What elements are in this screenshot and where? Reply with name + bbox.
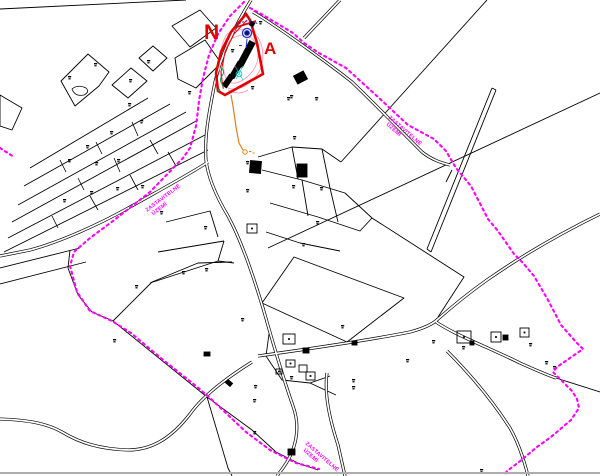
parcel-number-mark xyxy=(147,60,150,63)
building xyxy=(294,71,308,84)
building xyxy=(491,332,501,342)
building xyxy=(286,360,295,367)
parcel-number-mark xyxy=(246,161,249,164)
parcel-number-mark xyxy=(188,91,191,94)
parcel-number-mark xyxy=(241,318,244,321)
parcel-number-mark xyxy=(86,145,89,148)
parcel-number-mark xyxy=(135,285,138,288)
parcel-number-mark xyxy=(406,359,409,362)
parcel-number-mark xyxy=(545,361,548,364)
parcel-number-mark xyxy=(68,76,71,79)
parcel-number-mark xyxy=(141,185,144,188)
building xyxy=(283,334,295,344)
parcel-number-mark xyxy=(117,159,120,162)
parcel-number-mark xyxy=(287,97,290,100)
parcel-number-mark xyxy=(320,187,323,190)
parcel-number-mark xyxy=(231,49,234,52)
parcel-number-mark xyxy=(292,185,295,188)
parcel-number-mark xyxy=(94,63,97,66)
parcel-number-mark xyxy=(302,243,305,246)
utility-line-orange xyxy=(231,95,255,154)
site-area[interactable] xyxy=(216,14,263,154)
parcel-number-mark xyxy=(480,469,483,472)
parcel-number-mark xyxy=(113,339,116,342)
parcel-number-mark xyxy=(254,385,257,388)
parcel-number-mark xyxy=(293,136,296,139)
parcel-number-mark xyxy=(352,386,355,389)
building xyxy=(299,365,307,372)
label-area-a: A xyxy=(264,39,276,58)
parcel-number-mark xyxy=(110,131,113,134)
parcel-number-mark xyxy=(204,226,207,229)
building xyxy=(249,161,261,174)
building xyxy=(297,164,307,177)
utility-end-marker xyxy=(243,150,247,154)
parcel-number-mark xyxy=(259,21,262,24)
building xyxy=(352,341,357,345)
cadastral-map: ZASTAVITELNÉ ÚZEMÍ ZASTAVITELNÉ ÚZEMÍ ZA… xyxy=(0,0,600,476)
parcel-number-mark xyxy=(128,103,131,106)
boundary-label-3: ZASTAVITELNÉ ÚZEMÍ xyxy=(299,439,341,476)
label-north: N xyxy=(204,21,219,44)
parcel-number-mark xyxy=(290,376,293,379)
building xyxy=(288,449,295,455)
parcel-number-mark xyxy=(529,343,532,346)
building xyxy=(520,328,529,337)
parcel-number-mark xyxy=(341,325,344,328)
building xyxy=(204,352,210,356)
parcel-number-mark xyxy=(290,95,293,98)
building xyxy=(306,372,315,380)
parcel-number-mark xyxy=(352,379,355,382)
parcel-number-mark xyxy=(253,399,256,402)
parcel-number-mark xyxy=(95,162,98,165)
map-canvas[interactable]: ZASTAVITELNÉ ÚZEMÍ ZASTAVITELNÉ ÚZEMÍ ZA… xyxy=(0,0,600,476)
building xyxy=(303,348,309,353)
building xyxy=(470,341,474,345)
parcel-number-mark xyxy=(251,86,254,89)
parcel-number-mark xyxy=(432,340,435,343)
parcel-number-mark xyxy=(205,268,208,271)
parcel-number-mark xyxy=(462,346,465,349)
parcel-number-mark xyxy=(246,189,249,192)
parcel-number-mark xyxy=(140,120,143,123)
building xyxy=(503,335,508,340)
parcel-number-marks xyxy=(63,21,556,472)
boundary-segment-west xyxy=(70,2,319,469)
parcel-number-mark xyxy=(63,199,66,202)
building xyxy=(247,224,257,233)
parcel-number-mark xyxy=(315,97,318,100)
parcel-number-mark xyxy=(129,79,132,82)
parcel-number-mark xyxy=(116,187,119,190)
building xyxy=(457,331,471,343)
boundary-segment-left-edge xyxy=(0,148,14,157)
